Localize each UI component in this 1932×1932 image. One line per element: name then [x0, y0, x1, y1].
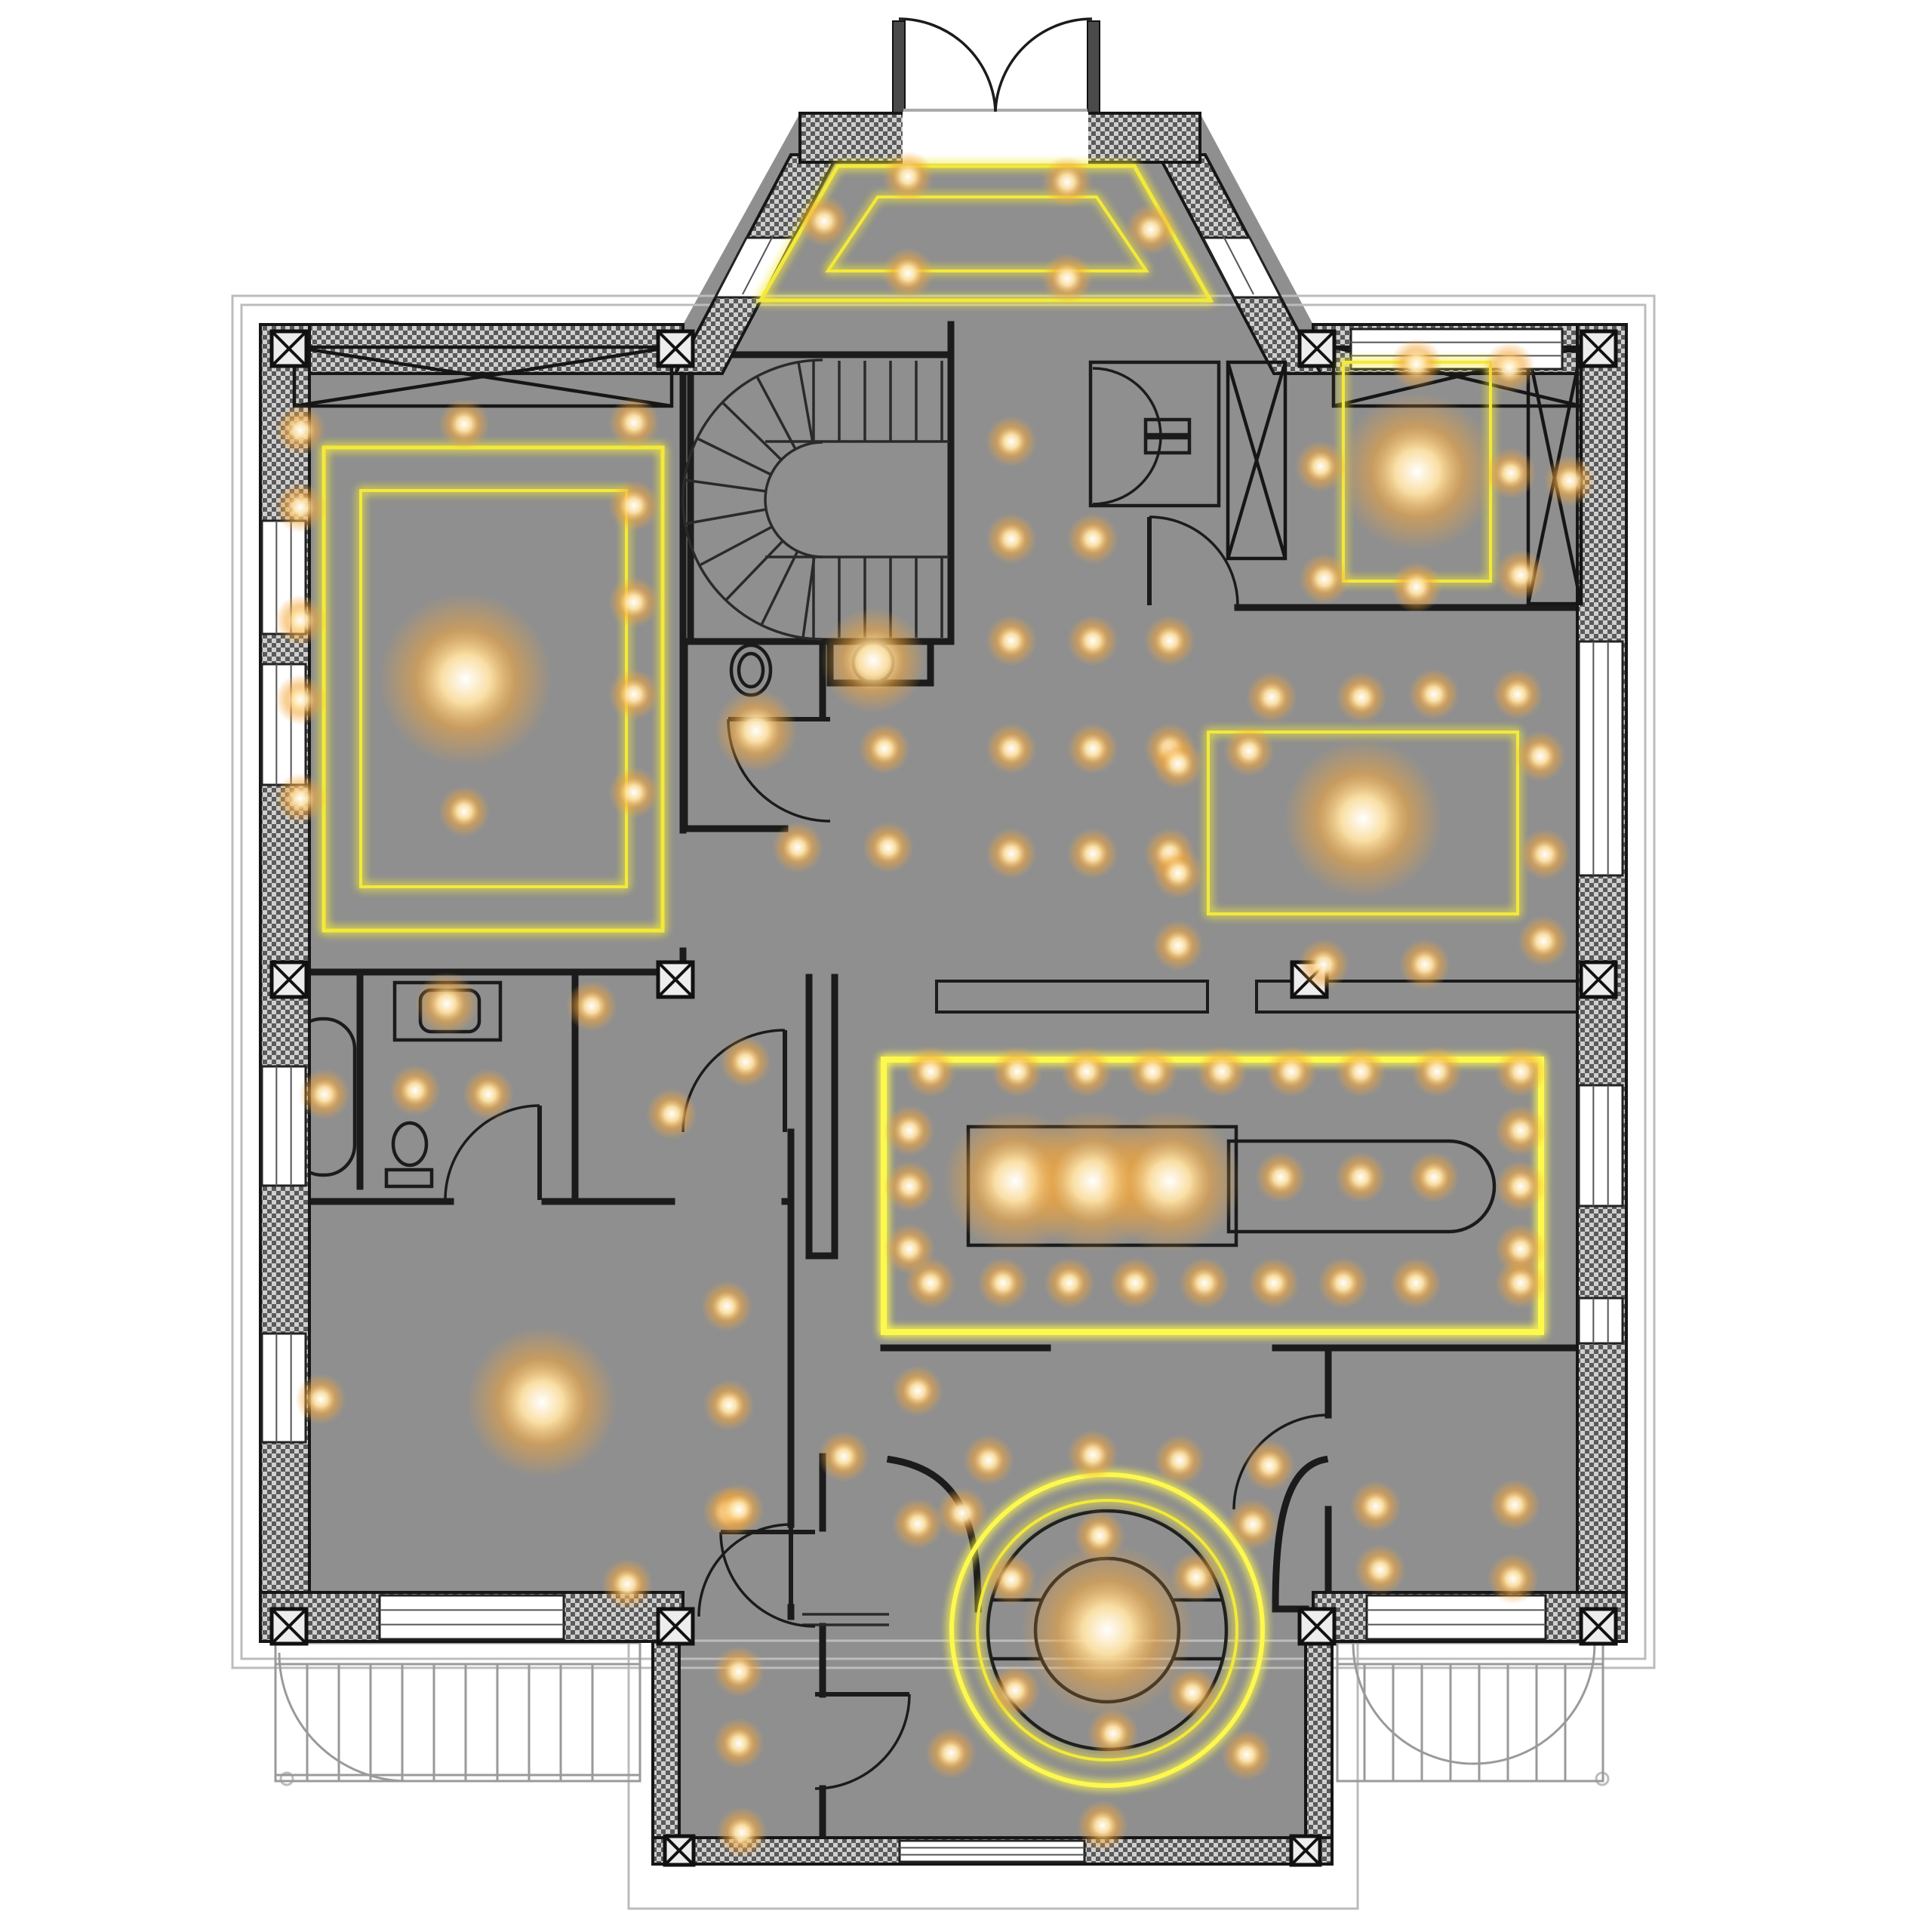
- recessed-light: [1227, 1499, 1278, 1550]
- recessed-light: [1544, 455, 1595, 506]
- recessed-light: [798, 195, 850, 247]
- recessed-light: [463, 1069, 514, 1120]
- recessed-light: [299, 1069, 350, 1120]
- recessed-light: [1244, 1440, 1295, 1491]
- recessed-light: [701, 1281, 752, 1332]
- recessed-light: [986, 1554, 1037, 1605]
- ceiling-light-glow: [1284, 740, 1442, 898]
- recessed-light: [1411, 1046, 1463, 1097]
- recessed-light: [884, 1223, 935, 1275]
- recessed-light: [646, 1088, 697, 1140]
- ceiling-light-glow: [1338, 392, 1497, 551]
- recessed-light: [1067, 828, 1118, 879]
- recessed-light: [1067, 1429, 1118, 1481]
- recessed-light: [1495, 1161, 1546, 1212]
- recessed-light: [986, 723, 1037, 774]
- recessed-light: [882, 151, 934, 202]
- recessed-light: [1492, 669, 1543, 720]
- recessed-light: [608, 767, 660, 818]
- recessed-light: [1515, 731, 1566, 782]
- ceiling-light-glow: [379, 592, 552, 766]
- recessed-light: [963, 1435, 1014, 1486]
- recessed-light: [566, 980, 617, 1032]
- recessed-light: [1125, 204, 1177, 255]
- recessed-light: [1495, 549, 1546, 601]
- recessed-light: [1061, 1046, 1112, 1097]
- recessed-light: [1495, 1223, 1546, 1275]
- recessed-light: [1299, 553, 1350, 605]
- recessed-light: [1167, 1667, 1218, 1718]
- recessed-light: [818, 1431, 869, 1482]
- ceiling-light-glow: [466, 1327, 617, 1478]
- recessed-light: [986, 416, 1037, 467]
- recessed-light: [1355, 1544, 1406, 1595]
- recessed-light: [1077, 1800, 1128, 1851]
- recessed-light: [1248, 1257, 1300, 1309]
- recessed-light: [275, 674, 326, 725]
- recessed-light: [1179, 1257, 1230, 1309]
- recessed-light: [1088, 1708, 1139, 1759]
- lighting-floor-plan: [0, 0, 1932, 1932]
- recessed-light: [703, 1380, 755, 1431]
- recessed-light: [713, 1718, 764, 1769]
- recessed-light: [275, 595, 326, 646]
- recessed-light: [1485, 448, 1537, 499]
- recessed-light: [1041, 156, 1093, 208]
- recessed-light: [1318, 1257, 1369, 1309]
- recessed-light: [1067, 615, 1118, 666]
- recessed-light: [1041, 253, 1093, 304]
- recessed-light: [863, 822, 914, 873]
- recessed-light: [882, 248, 934, 299]
- recessed-light: [1127, 1046, 1178, 1097]
- recessed-light: [608, 397, 660, 448]
- recessed-light: [1152, 738, 1204, 789]
- recessed-light: [275, 481, 326, 533]
- recessed-light: [1391, 338, 1442, 389]
- recessed-light: [1487, 1553, 1539, 1604]
- recessed-light: [977, 1257, 1029, 1309]
- recessed-light: [1495, 1105, 1546, 1156]
- recessed-light: [1255, 1152, 1306, 1203]
- recessed-light: [1152, 848, 1204, 899]
- recessed-light: [1489, 1479, 1540, 1531]
- recessed-light: [989, 1665, 1041, 1716]
- recessed-light: [1391, 561, 1442, 613]
- recessed-light: [1390, 1257, 1441, 1309]
- recessed-light: [1246, 672, 1297, 723]
- ceiling-light-glow: [415, 972, 478, 1035]
- recessed-light: [884, 1161, 935, 1212]
- recessed-light: [1399, 939, 1451, 990]
- recessed-light: [1154, 1435, 1205, 1486]
- recessed-light: [713, 1484, 764, 1535]
- recessed-light: [608, 577, 660, 628]
- recessed-light: [1044, 1257, 1095, 1309]
- recessed-light: [1518, 915, 1569, 967]
- recessed-light: [1335, 1152, 1386, 1203]
- recessed-light: [1067, 513, 1118, 565]
- recessed-light: [1266, 1046, 1317, 1097]
- recessed-light: [884, 1105, 935, 1156]
- ceiling-light-glow: [820, 608, 926, 713]
- recessed-light: [925, 1727, 977, 1779]
- recessed-light: [1074, 1510, 1125, 1561]
- recessed-light: [992, 1046, 1043, 1097]
- recessed-light: [389, 1065, 441, 1116]
- recessed-light: [1408, 1152, 1460, 1203]
- recessed-light: [1109, 1257, 1161, 1309]
- recessed-light: [1223, 725, 1275, 777]
- ceiling-light-glow: [1098, 1109, 1241, 1253]
- recessed-light: [1336, 672, 1387, 723]
- recessed-light: [1144, 615, 1195, 666]
- recessed-light: [438, 398, 490, 450]
- recessed-light: [1484, 342, 1535, 393]
- ceiling-light-glow: [715, 689, 798, 772]
- recessed-light: [1067, 723, 1118, 774]
- recessed-light: [1152, 920, 1204, 971]
- recessed-light: [1221, 1729, 1272, 1780]
- recessed-light: [772, 822, 823, 873]
- recessed-light: [1519, 829, 1571, 880]
- recessed-light: [1495, 1046, 1546, 1097]
- recessed-light: [1335, 1046, 1386, 1097]
- recessed-light: [1350, 1481, 1401, 1532]
- recessed-light: [1298, 939, 1349, 990]
- recessed-light: [608, 480, 660, 531]
- recessed-light: [716, 1807, 768, 1858]
- recessed-light: [892, 1365, 943, 1417]
- floor-plan-page: [0, 0, 1932, 1932]
- recessed-light: [859, 723, 910, 774]
- recessed-light: [1196, 1046, 1247, 1097]
- recessed-light: [275, 773, 326, 824]
- recessed-light: [1171, 1552, 1222, 1603]
- recessed-light: [720, 1036, 771, 1088]
- recessed-light: [986, 828, 1037, 879]
- recessed-light: [713, 1646, 764, 1697]
- recessed-light: [986, 513, 1037, 565]
- recessed-light: [438, 786, 490, 837]
- recessed-light: [1408, 669, 1460, 720]
- recessed-light: [1295, 441, 1346, 492]
- recessed-light: [905, 1046, 956, 1097]
- recessed-light: [608, 669, 660, 720]
- recessed-light: [601, 1558, 653, 1610]
- recessed-light: [986, 615, 1037, 666]
- recessed-light: [937, 1487, 988, 1539]
- recessed-light: [295, 1374, 346, 1425]
- recessed-light: [892, 1498, 943, 1549]
- recessed-light: [275, 405, 326, 456]
